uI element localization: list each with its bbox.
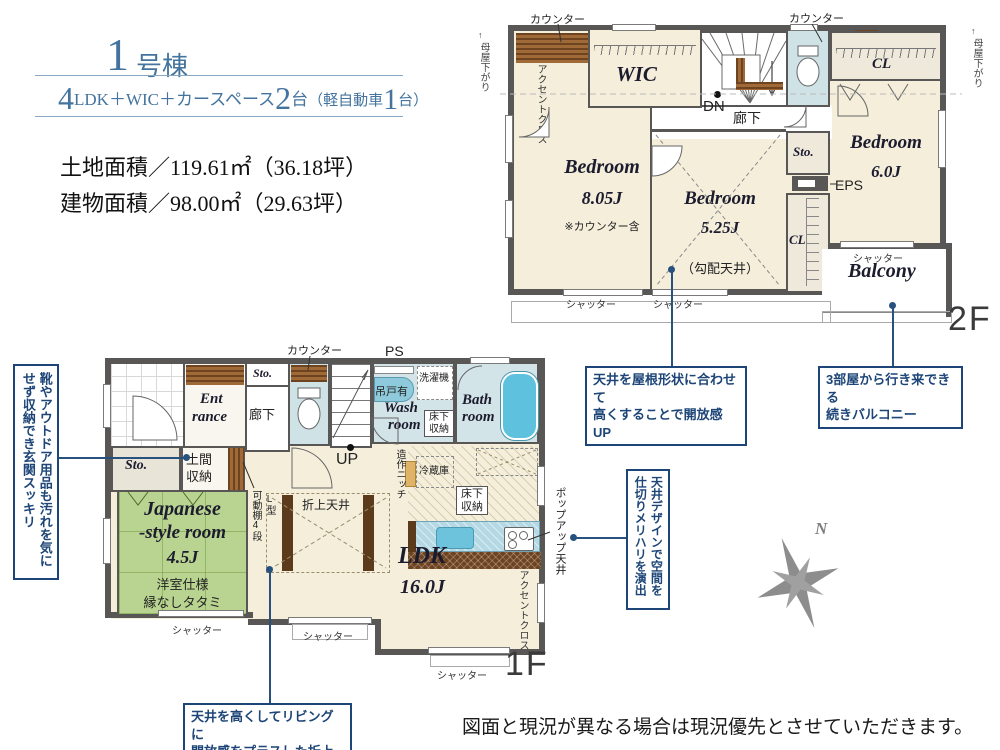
callout-text: 高くすることで開放感UP (593, 407, 723, 440)
compass-n-label: N (814, 519, 828, 538)
callout-text: 続きバルコニー (826, 407, 917, 422)
callout-dot (668, 266, 675, 273)
callout-line (892, 307, 894, 367)
callout-sloped-ceiling: 天井を屋根形状に合わせて 高くすることで開放感UP (585, 366, 747, 446)
callout-line (671, 271, 673, 368)
callout-line (269, 571, 271, 705)
callout-line (576, 537, 628, 539)
callout-oriage-ceiling: 天井を高くしてリビングに 開放感をプラスした折上天井 (183, 703, 352, 750)
callout-entrance-storage: 靴やアウトドア用品も汚れを気にせず収納でき玄関スッキリ (13, 364, 59, 580)
callout-text: 3部屋から行き来できる (826, 372, 950, 405)
callout-text: 天井を高くしてリビングに (191, 709, 334, 742)
callout-text: 天井を屋根形状に合わせて (593, 372, 736, 405)
compass-rose-icon: N (741, 508, 856, 638)
callout-ceiling-design: 天井デザインで空間を仕切りメリハリを演出 (626, 469, 670, 610)
callout-dot (889, 302, 896, 309)
floorplan-flyer: 1 号棟 4LDK＋WIC＋カースペース2台（軽自動車1台） 土地面積／119.… (0, 0, 1000, 750)
compass: N (741, 508, 856, 638)
callout-line (50, 457, 185, 459)
callout-dot (570, 534, 577, 541)
disclaimer-text: 図面と現況が異なる場合は現況優先とさせていただきます。 (462, 712, 973, 739)
callout-dot (183, 454, 190, 461)
callout-balcony: 3部屋から行き来できる 続きバルコニー (818, 366, 963, 429)
callout-text: 開放感をプラスした折上天井 (191, 744, 334, 750)
callout-dot (266, 566, 273, 573)
